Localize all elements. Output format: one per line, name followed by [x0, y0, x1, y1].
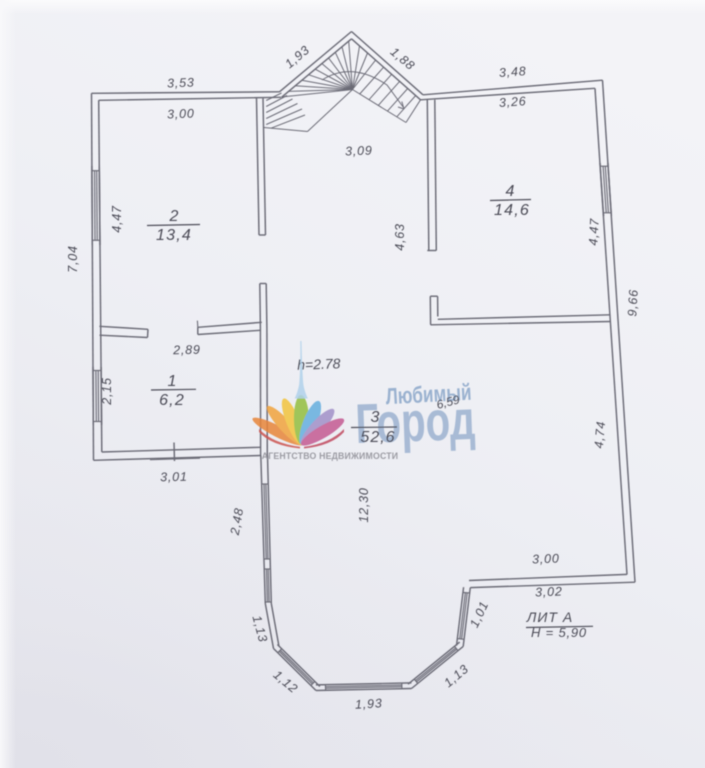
svg-text:2,15: 2,15	[100, 377, 114, 406]
svg-text:3,26: 3,26	[499, 94, 527, 110]
svg-text:4,47: 4,47	[110, 205, 124, 233]
svg-text:3,00: 3,00	[532, 552, 560, 567]
svg-text:52,6: 52,6	[360, 429, 395, 446]
svg-text:2,89: 2,89	[172, 343, 201, 357]
svg-text:3: 3	[371, 409, 380, 426]
svg-text:1,93: 1,93	[355, 696, 383, 711]
svg-text:12,30: 12,30	[357, 487, 371, 522]
svg-text:4,63: 4,63	[393, 223, 407, 251]
svg-text:2: 2	[169, 208, 179, 225]
svg-text:h=2.78: h=2.78	[297, 355, 341, 373]
svg-text:3,53: 3,53	[167, 76, 195, 91]
svg-text:1: 1	[168, 373, 177, 390]
svg-text:3,09: 3,09	[345, 144, 373, 159]
svg-text:14,6: 14,6	[494, 202, 530, 219]
svg-text:6,2: 6,2	[159, 392, 185, 409]
svg-text:3,48: 3,48	[499, 64, 527, 80]
svg-text:3,01: 3,01	[160, 470, 188, 484]
svg-text:3,02: 3,02	[535, 585, 563, 600]
svg-text:Н = 5,90: Н = 5,90	[531, 625, 587, 640]
svg-text:13,4: 13,4	[156, 227, 192, 244]
svg-text:3,00: 3,00	[167, 107, 195, 122]
svg-text:АГЕНТСТВО НЕДВИЖИМОСТИ: АГЕНТСТВО НЕДВИЖИМОСТИ	[262, 451, 398, 461]
svg-text:9,66: 9,66	[625, 289, 640, 317]
svg-text:4,74: 4,74	[592, 420, 608, 449]
svg-text:7,04: 7,04	[66, 245, 80, 273]
svg-text:4: 4	[506, 183, 515, 200]
svg-text:ЛИТ А: ЛИТ А	[526, 609, 573, 625]
svg-text:4,47: 4,47	[586, 217, 601, 245]
